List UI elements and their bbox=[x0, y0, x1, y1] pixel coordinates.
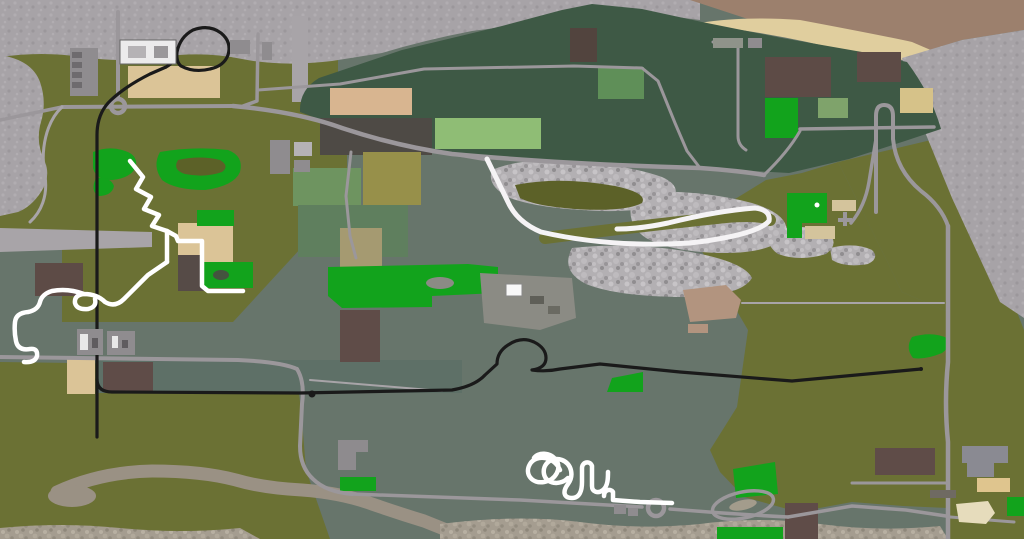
route-black-endpoint bbox=[919, 367, 923, 371]
parking-mark2 bbox=[72, 62, 82, 68]
building-westfarm-b bbox=[107, 331, 135, 355]
vehicle-dot-black bbox=[309, 391, 316, 398]
building-village-b bbox=[628, 508, 638, 516]
field-pinktan bbox=[330, 88, 412, 115]
green-blob-b-curl bbox=[176, 158, 225, 176]
road-ne-horizontal bbox=[800, 127, 934, 129]
building-westfarm-d1 bbox=[92, 338, 98, 348]
building-westfarm-w2 bbox=[112, 336, 118, 348]
road-horizontal-topleft bbox=[62, 106, 233, 107]
gray-strip bbox=[292, 16, 308, 102]
field-bright-corner bbox=[1007, 497, 1024, 516]
game-map-canvas[interactable] bbox=[0, 0, 1024, 539]
field-tan-ne bbox=[900, 88, 933, 113]
field-maroon-bottom bbox=[785, 503, 818, 539]
field-bright-big-l-hole bbox=[426, 277, 454, 289]
field-maroon-bl bbox=[103, 362, 153, 392]
parking-mark1 bbox=[72, 52, 82, 58]
building-barn-inner1 bbox=[128, 46, 146, 58]
building-farm2-a bbox=[270, 140, 290, 174]
field-oliveyellow bbox=[363, 152, 421, 205]
farm-marker-white bbox=[506, 284, 522, 296]
building-se-dark bbox=[930, 490, 956, 498]
building-center-dark2 bbox=[548, 306, 560, 314]
field-medgreen-forest bbox=[598, 67, 644, 99]
creek-pool bbox=[48, 485, 96, 507]
field-khaki bbox=[340, 228, 382, 270]
parking-mark3 bbox=[72, 72, 82, 78]
building-westfarm-d2 bbox=[122, 340, 128, 348]
building-shed2 bbox=[262, 42, 272, 60]
field-tan-bl bbox=[67, 358, 95, 394]
field-bright-ne bbox=[765, 98, 798, 138]
building-farm2-b bbox=[294, 142, 312, 156]
building-nefarm-b bbox=[748, 38, 762, 48]
loader-cross-v bbox=[843, 212, 847, 226]
field-bright-c bbox=[197, 210, 234, 226]
parking-mark4 bbox=[72, 82, 82, 88]
building-barn-inner2 bbox=[154, 46, 168, 58]
vehicle-dot-white bbox=[815, 203, 820, 208]
field-maroon-se bbox=[875, 448, 935, 475]
building-se-tan bbox=[977, 478, 1010, 492]
field-lightgreen bbox=[435, 118, 541, 149]
building-center-farm bbox=[480, 273, 576, 330]
field-maroon-ne1 bbox=[765, 57, 831, 97]
field-dark-forest bbox=[570, 28, 597, 62]
building-village-a bbox=[614, 505, 626, 514]
field-lightgreen-ne bbox=[818, 98, 848, 118]
field-bright-bl bbox=[340, 477, 376, 491]
field-maroon-mid bbox=[340, 310, 380, 362]
building-tan-e1 bbox=[832, 200, 856, 211]
building-pink-farm-b bbox=[688, 324, 708, 333]
field-maroon-ne2 bbox=[857, 52, 901, 82]
building-westfarm-w1 bbox=[80, 334, 88, 350]
building-nefarm-a bbox=[713, 38, 743, 48]
field-bright-d-spot bbox=[213, 270, 229, 280]
field-medgreen-mid bbox=[293, 168, 361, 206]
building-tan-e2 bbox=[805, 226, 835, 239]
field-bright-se2 bbox=[717, 527, 783, 539]
building-farm2-c bbox=[294, 160, 310, 172]
building-shed1 bbox=[230, 40, 250, 54]
building-center-dark1 bbox=[530, 296, 544, 304]
map-svg bbox=[0, 0, 1024, 539]
